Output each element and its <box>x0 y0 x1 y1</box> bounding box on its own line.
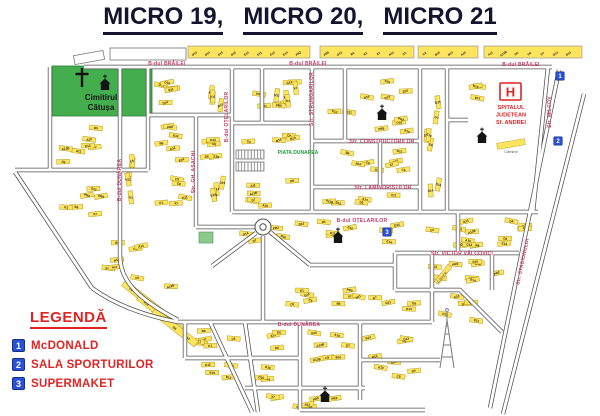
hospital-label: SPITALUL <box>498 105 526 111</box>
street-label: Str. LAMINORIȘTILOR <box>354 185 411 191</box>
garage-row <box>236 162 264 171</box>
building-label: D7 <box>346 344 350 348</box>
building-label: A11 <box>391 193 397 198</box>
building-label: A11 <box>210 95 216 99</box>
hospital-label: JUDETEAN <box>496 113 526 119</box>
building-label: D5 <box>277 331 281 335</box>
street-label: Str. STADIONULUI <box>515 238 531 286</box>
building-label: D14 <box>406 307 412 311</box>
street-label: Str. STRUNGARILOR <box>309 72 315 126</box>
building-label: D6 <box>290 179 295 184</box>
building-label: D6 <box>275 346 279 350</box>
legend-marker-3: 3 <box>12 377 25 390</box>
hospital-h-letter: H <box>506 85 515 100</box>
church-icon <box>477 128 488 144</box>
building-label: A11 <box>112 265 118 269</box>
legend-marker-1: 1 <box>12 339 25 352</box>
legend: LEGENDĂ 1 McDONALD 2 SALA SPORTURILOR 3 … <box>12 309 154 390</box>
building-label: N11 <box>125 178 131 182</box>
street-label: B-dul DUNĂREA <box>116 159 123 202</box>
map-page: MICRO 19,MICRO 20,MICRO 21 A10A11A13BD5D… <box>0 0 600 416</box>
building-label: A13B <box>313 357 322 362</box>
hospital-label: Sf. ANDREI <box>496 120 526 126</box>
building-label: C8 <box>397 374 401 378</box>
area-label: Cimitirul <box>85 93 117 102</box>
garage-row <box>236 150 264 159</box>
tower-icon <box>440 309 454 368</box>
church-icon <box>333 228 344 244</box>
building-label: D14 <box>428 189 434 193</box>
building-label: E10 <box>472 260 478 264</box>
building-label: B10 <box>336 355 342 359</box>
legend-item-supermarket: 3 SUPERMAKET <box>12 377 154 390</box>
building-label: N11 <box>397 149 403 154</box>
building-label: E14 <box>501 242 507 247</box>
building-strip <box>73 50 104 64</box>
roundabout-island <box>260 224 266 230</box>
building-label: PR5 <box>276 103 282 107</box>
building-label: X7 <box>93 212 97 216</box>
legend-marker-2: 2 <box>12 358 25 371</box>
street-label: B-dul BRĂILEI <box>289 60 327 67</box>
building-label: X7 <box>348 294 352 298</box>
street-label: Str. MILCOV <box>547 96 553 128</box>
building-label: C5 <box>135 276 139 280</box>
street-label: B-dul BRĂILEI <box>502 61 540 68</box>
building-label: PR5 <box>167 125 174 130</box>
building-label: D5 <box>94 126 99 130</box>
building-label: D6 <box>205 155 209 159</box>
street-label: Str. CONSTRUCTORILOR <box>349 139 414 145</box>
building-label: E11 <box>475 96 481 100</box>
church-icon <box>377 105 388 121</box>
garage-strip <box>320 46 414 58</box>
road <box>212 233 256 266</box>
building-label: D6 <box>509 219 513 223</box>
building-strip <box>110 48 186 60</box>
street-label: Str. VICTOR VÂLCOVICI <box>431 250 493 257</box>
tilted-building-row: D5D6D7 <box>152 308 199 347</box>
map-marker-2: 2 <box>554 137 562 145</box>
building-label: B6 <box>201 329 206 333</box>
building-label: D15 <box>220 181 226 185</box>
building-label: B6 <box>336 302 340 306</box>
area-label: PIATA DUNAREA <box>278 150 319 156</box>
building-label: N11 <box>305 403 311 407</box>
small-park <box>199 232 213 243</box>
legend-title: LEGENDĂ <box>30 309 107 329</box>
building-label: E10 <box>209 371 215 375</box>
building-label: D13 <box>210 138 216 142</box>
street-label: B-dul BRĂILEI <box>148 60 186 67</box>
building-label: D13 <box>385 300 391 305</box>
street-label: Str. GH. ASACHI <box>191 150 197 193</box>
map-marker-1: 1 <box>556 72 564 80</box>
hospital-symbol: HSPITALULJUDETEANSf. ANDREI <box>496 83 526 126</box>
area-label: Cătușa <box>88 103 115 112</box>
building-label: A10 <box>378 365 384 370</box>
map-marker-3: 3 <box>383 228 391 236</box>
street-label: B-dul OȚELARILOR <box>337 218 388 224</box>
road <box>270 232 310 265</box>
building-label: K1 <box>300 288 305 292</box>
street-label: B-dul DUNĂREA <box>278 321 321 328</box>
building-label: D5 <box>321 220 326 225</box>
road <box>15 172 92 288</box>
legend-item-mcdonald: 1 McDONALD <box>12 339 154 352</box>
building-label: D5 <box>359 201 363 205</box>
street-label: B-dul OȚELARILOR <box>224 92 230 143</box>
building-label: G12 <box>466 242 473 247</box>
building-label: E14 <box>226 375 232 380</box>
area-label: Cămine <box>504 149 519 154</box>
building <box>497 139 526 150</box>
legend-item-sala-sporturilor: 2 SALA SPORTURILOR <box>12 358 154 371</box>
